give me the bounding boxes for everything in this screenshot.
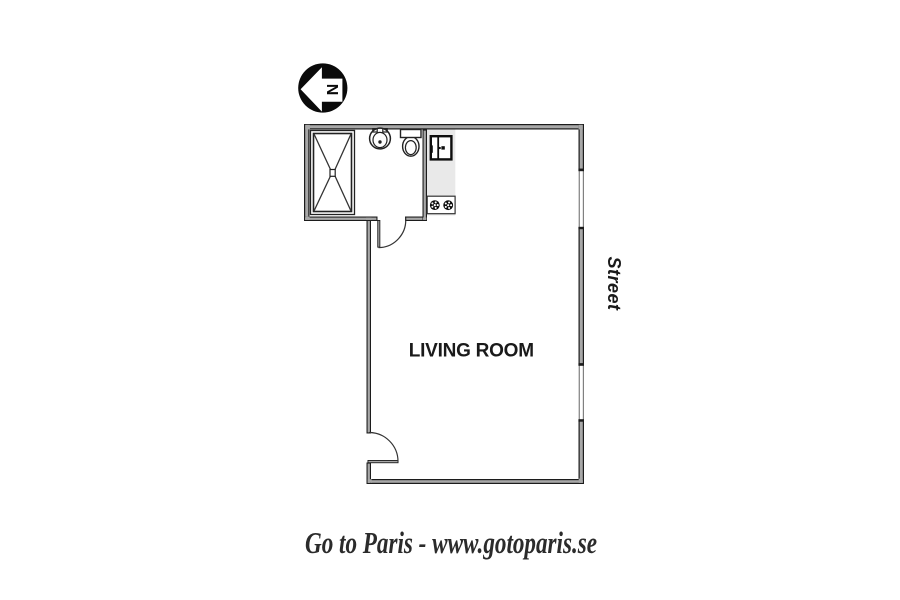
svg-text:Street: Street xyxy=(604,256,624,311)
svg-text:N: N xyxy=(323,84,340,96)
svg-text:Go to Paris - www.gotoparis.se: Go to Paris - www.gotoparis.se xyxy=(305,525,597,560)
svg-text:LIVING ROOM: LIVING ROOM xyxy=(409,341,534,362)
